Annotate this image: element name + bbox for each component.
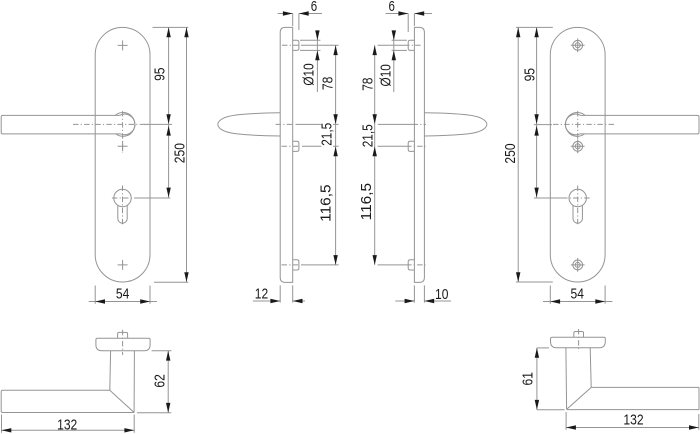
svg-text:78: 78: [361, 78, 377, 91]
svg-text:132: 132: [57, 417, 77, 433]
svg-text:6: 6: [311, 0, 317, 15]
svg-text:12: 12: [255, 286, 268, 302]
svg-text:Ø10: Ø10: [302, 63, 318, 85]
svg-text:95: 95: [153, 68, 169, 81]
svg-text:6: 6: [389, 0, 395, 15]
svg-text:21,5: 21,5: [320, 123, 336, 146]
svg-text:78: 78: [320, 77, 336, 90]
svg-text:10: 10: [435, 287, 448, 303]
svg-text:21,5: 21,5: [360, 124, 376, 147]
svg-text:54: 54: [116, 287, 129, 303]
svg-text:Ø10: Ø10: [379, 64, 395, 86]
svg-text:132: 132: [623, 413, 643, 429]
svg-text:250: 250: [173, 143, 189, 163]
svg-text:116,5: 116,5: [359, 183, 375, 221]
svg-text:61: 61: [520, 372, 536, 385]
svg-text:116,5: 116,5: [319, 184, 335, 222]
svg-text:250: 250: [503, 143, 519, 163]
svg-text:54: 54: [571, 286, 584, 302]
svg-text:95: 95: [523, 68, 539, 81]
svg-text:62: 62: [152, 374, 168, 387]
